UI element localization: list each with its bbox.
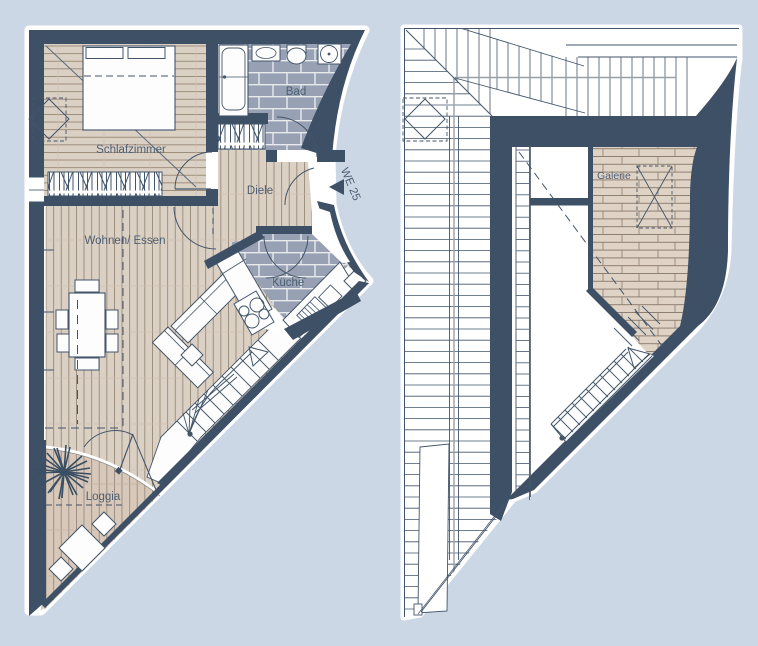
- svg-text:Loggia: Loggia: [86, 491, 121, 503]
- svg-text:Bad: Bad: [286, 86, 306, 98]
- svg-text:Galerie: Galerie: [597, 170, 631, 182]
- svg-text:Schlafzimmer: Schlafzimmer: [96, 144, 166, 156]
- svg-text:Küche: Küche: [272, 277, 305, 289]
- svg-text:Diele: Diele: [247, 185, 273, 197]
- svg-text:Wohnen/ Essen: Wohnen/ Essen: [85, 235, 166, 247]
